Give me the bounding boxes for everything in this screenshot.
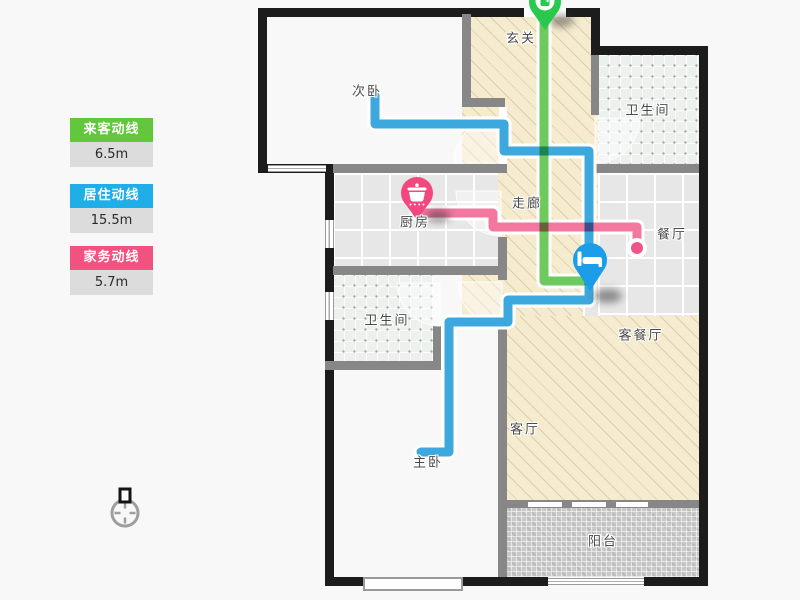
room-label-bathroom1: 卫生间: [625, 100, 670, 119]
room-label-dining: 餐厅: [657, 224, 687, 243]
housework-route-end-dot: [631, 242, 643, 254]
housework-route-line: [417, 211, 637, 247]
room-label-bathroom2: 卫生间: [364, 310, 409, 329]
visitor-route-casing: [544, 0, 584, 281]
north-indicator-icon: [112, 489, 138, 526]
door-arc-bathroom1: [595, 118, 640, 163]
room-label-balcony: 阳台: [588, 531, 618, 550]
bed-pin-shadow: [594, 289, 622, 303]
room-label-master: 主卧: [413, 452, 443, 471]
room-label-corridor: 走廊: [512, 193, 542, 212]
room-label-living: 客厅: [510, 419, 540, 438]
room-label-kitchen: 厨房: [400, 212, 430, 231]
room-label-bedroom2: 次卧: [352, 81, 382, 100]
room-label-living-dining: 客餐厅: [618, 325, 663, 344]
room-label-entrance: 玄关: [506, 28, 536, 47]
routes-overlay: [0, 0, 800, 600]
floorplan-canvas: 来客动线 6.5m 居住动线 15.5m 家务动线 5.7m: [0, 0, 800, 600]
